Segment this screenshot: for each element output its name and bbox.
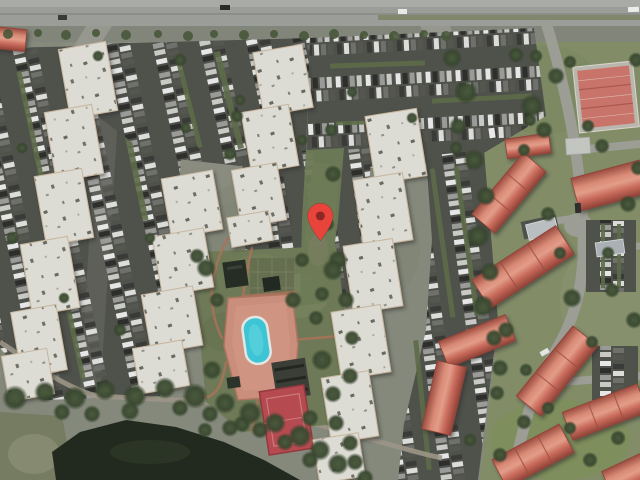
- pavilion: [222, 259, 248, 288]
- grass-median: [378, 15, 640, 20]
- pin-dot: [316, 211, 325, 220]
- map-viewport[interactable]: [0, 0, 640, 480]
- satellite-map-canvas[interactable]: [0, 0, 640, 480]
- pavilion-small: [262, 276, 281, 292]
- shed: [226, 376, 240, 389]
- clubhouse: [565, 137, 590, 155]
